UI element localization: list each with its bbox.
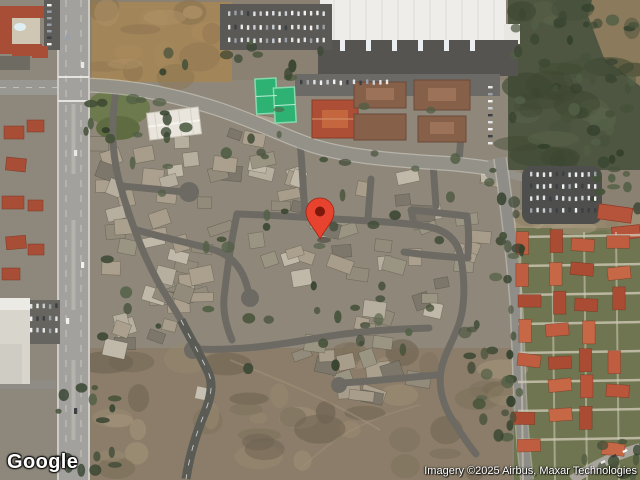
west-arterial	[57, 0, 90, 480]
map-viewport[interactable]: Google Imagery ©2025 Airbus, Maxar Techn…	[0, 0, 640, 480]
commercial-west	[0, 298, 30, 384]
satellite-map-canvas[interactable]	[0, 0, 640, 480]
imagery-attribution: Imagery ©2025 Airbus, Maxar Technologies	[424, 465, 637, 477]
pin-inner-circle	[315, 207, 325, 217]
church-building	[147, 107, 202, 140]
clubhouse-red-roof	[312, 100, 358, 138]
parking-lot-north	[220, 4, 332, 50]
google-logo[interactable]: Google	[7, 451, 78, 474]
